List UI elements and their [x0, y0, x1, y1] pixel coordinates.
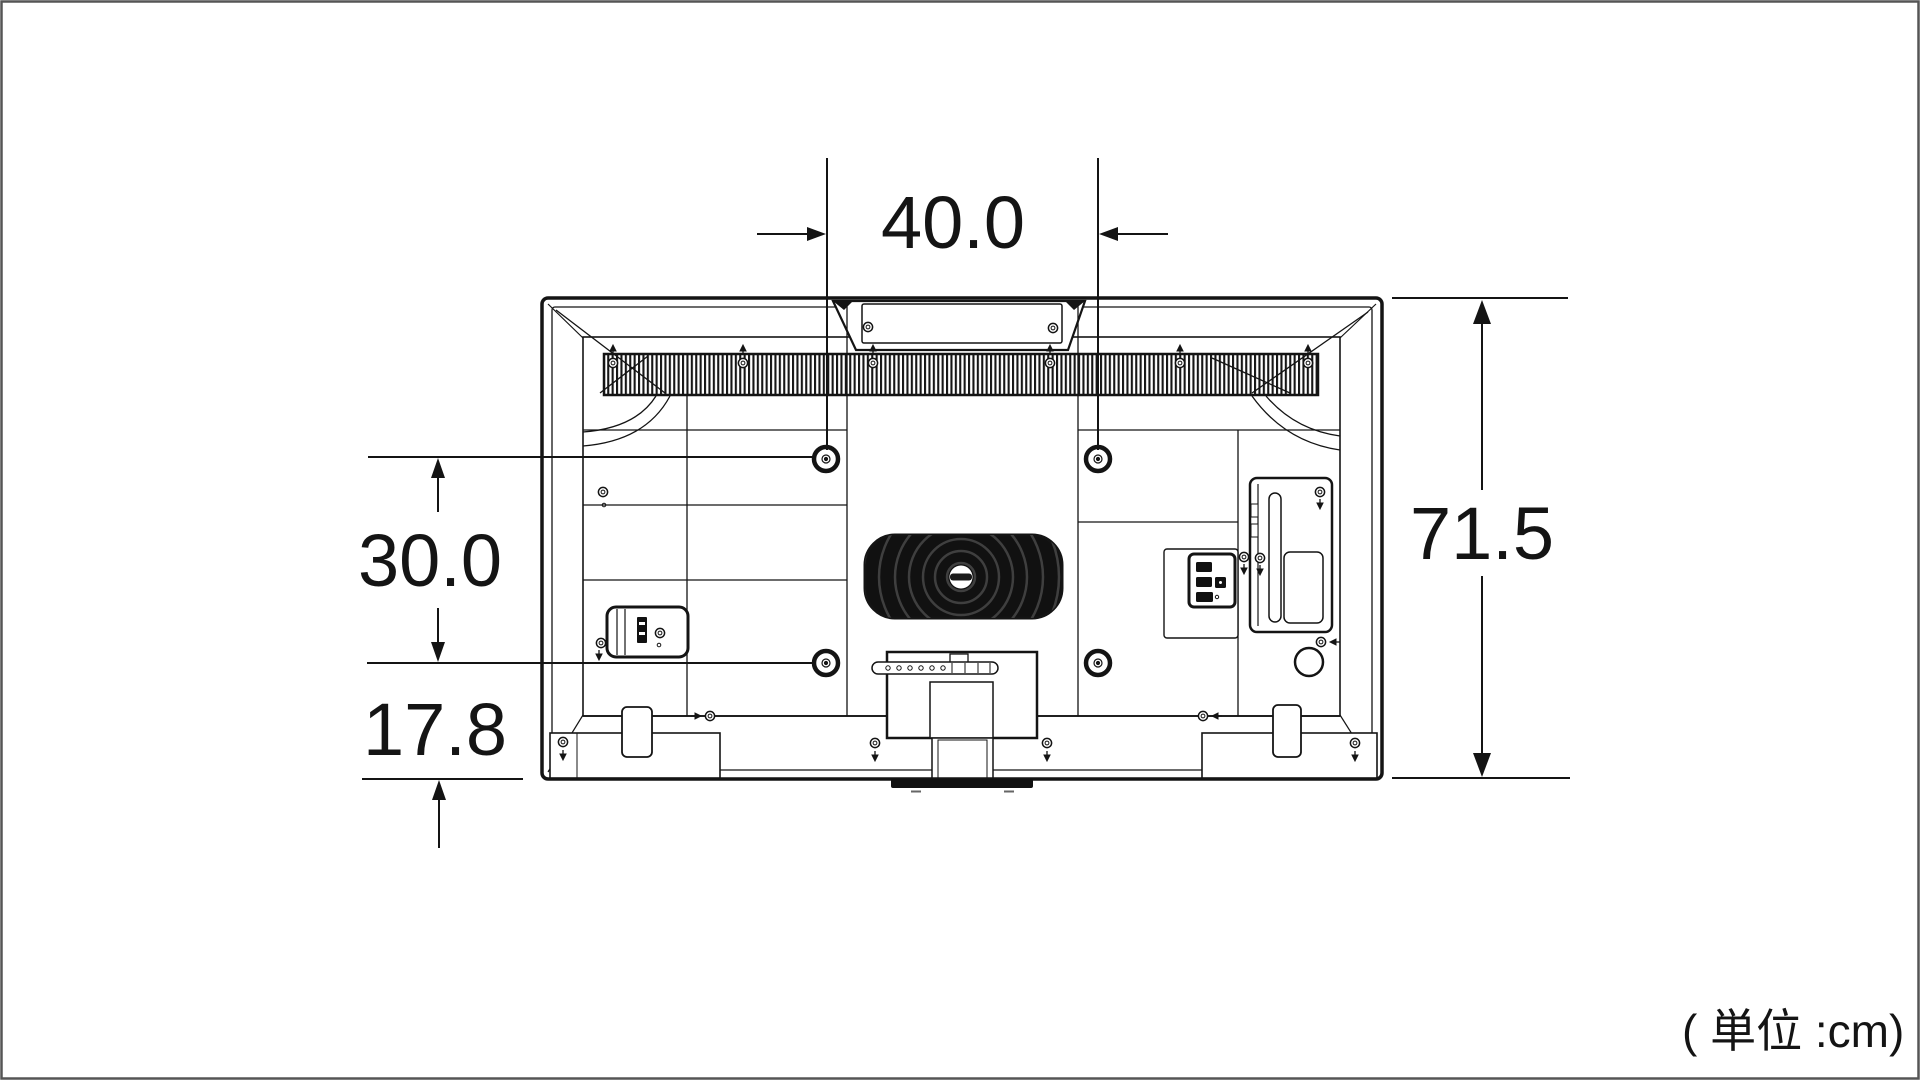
cable-clamp-right [1273, 705, 1301, 757]
vesa-hole-bottom-right [1086, 651, 1110, 675]
top-mount-recess [833, 301, 1085, 350]
panel-screws-left [598, 487, 607, 506]
arrow-up-icon [432, 780, 446, 800]
arrow-down-icon [1473, 753, 1491, 777]
arrow-up-icon [431, 458, 445, 478]
port-slot [1196, 592, 1213, 602]
dimension-bottom-offset [362, 779, 523, 848]
stand-base [891, 779, 1033, 788]
cable-clamp-left [622, 707, 652, 757]
arrow-left-icon [1099, 227, 1118, 241]
vesa-hole-top-right [1086, 447, 1110, 471]
arrow-down-icon [431, 642, 445, 662]
dimension-label-set-height: 71.5 [1410, 492, 1554, 575]
diagram-canvas: 40.0 30.0 17.8 71.5 ( 単位 :cm) [0, 0, 1920, 1080]
tv-rear-body [542, 298, 1382, 792]
arrow-right-icon [807, 227, 826, 241]
av-port-panel [1164, 549, 1238, 638]
side-usb-bracket [596, 607, 688, 660]
terminal-cover-panel [1239, 478, 1332, 632]
label-area [1284, 552, 1323, 623]
vesa-hole-top-left [814, 447, 838, 471]
usb-port [637, 617, 647, 643]
round-connector [1295, 637, 1340, 676]
unit-note: ( 単位 :cm) [1682, 1005, 1904, 1057]
screw-icon [1048, 323, 1057, 332]
screw-icon [863, 322, 872, 331]
vent-slot [1269, 493, 1281, 622]
port-slot [1196, 577, 1212, 587]
port-slot [1196, 562, 1212, 572]
dimension-label-mount-width: 40.0 [881, 181, 1025, 264]
speaker-grille [604, 354, 1318, 395]
vesa-hole-bottom-left [814, 651, 838, 675]
arrow-up-icon [1473, 300, 1491, 324]
dimension-label-mount-height: 30.0 [358, 519, 502, 602]
dimension-label-bottom-offset: 17.8 [363, 688, 507, 771]
tv-rear-dimension-diagram: 40.0 30.0 17.8 71.5 ( 単位 :cm) [0, 0, 1920, 1080]
